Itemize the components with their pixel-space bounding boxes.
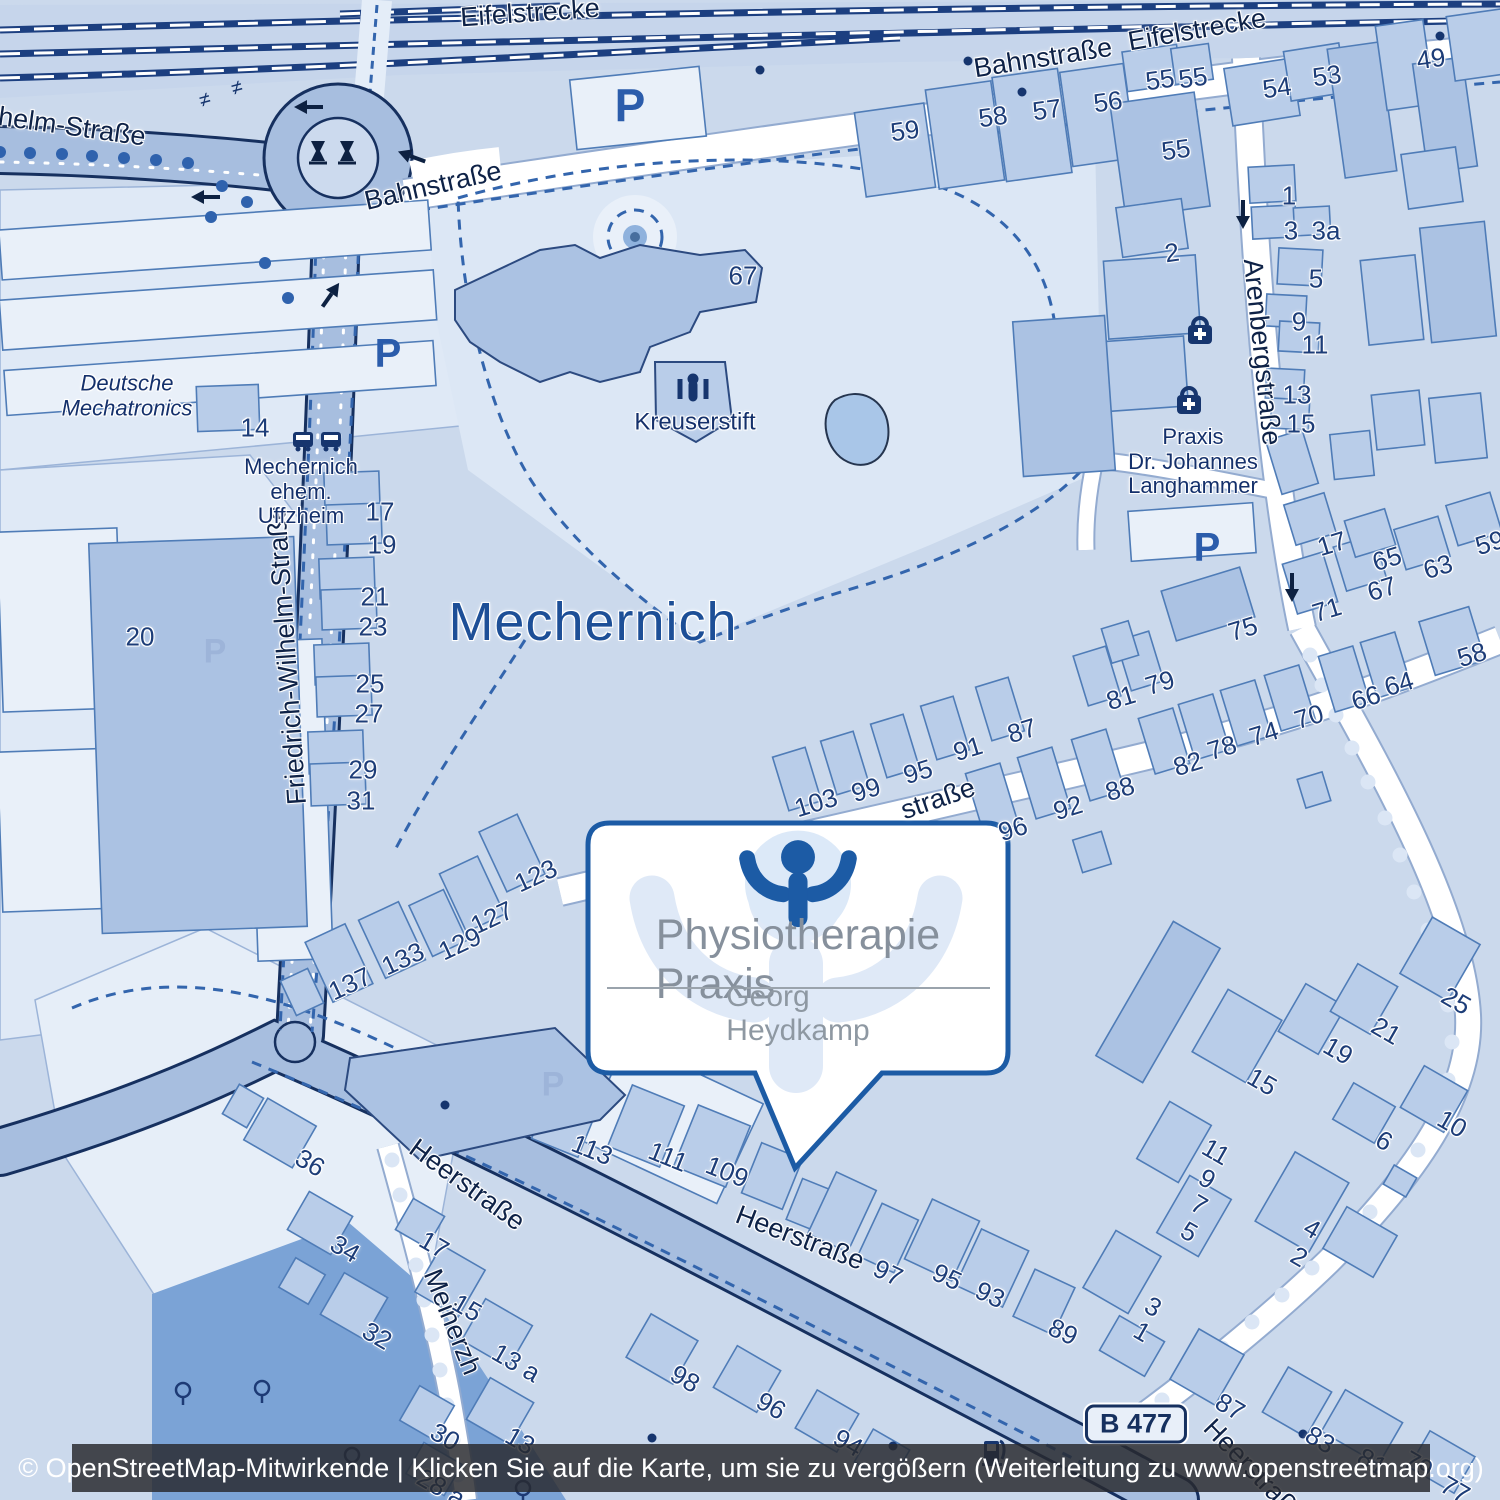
route-badge-b477: B 477: [1085, 1405, 1187, 1444]
raised-arms-person-icon: [745, 831, 851, 937]
map-screenshot: PPPPP≠≠ Physiotherapie Praxis Georg Heyd…: [0, 0, 1500, 1500]
attribution-bar[interactable]: © OpenStreetMap-Mitwirkende | Klicken Si…: [72, 1444, 1430, 1492]
attribution-text: © OpenStreetMap-Mitwirkende | Klicken Si…: [18, 1453, 1484, 1484]
physio-callout[interactable]: [0, 0, 1500, 1500]
